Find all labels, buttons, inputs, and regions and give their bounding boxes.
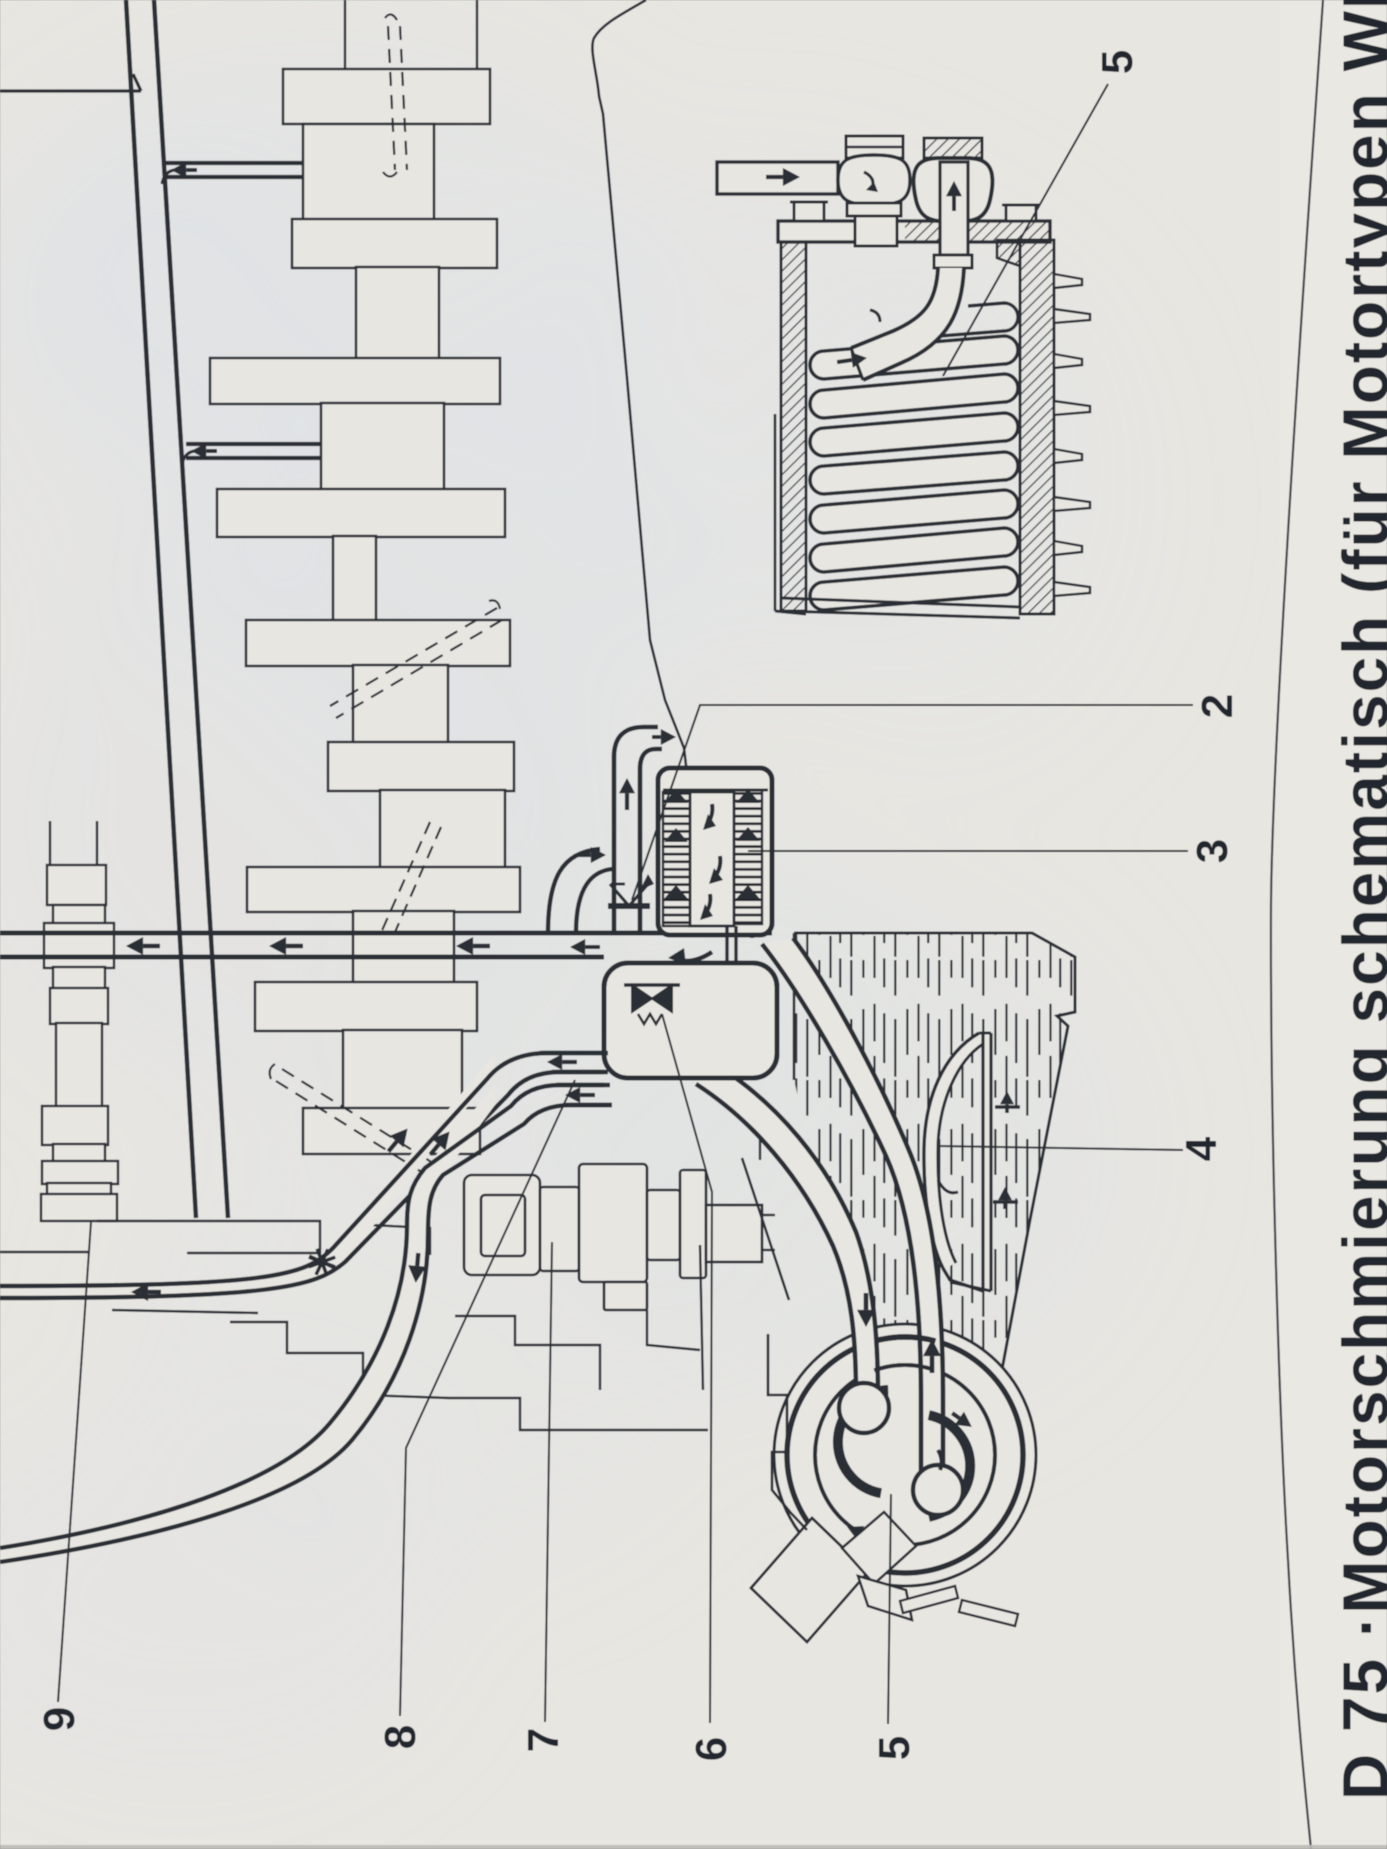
svg-text:5: 5 — [870, 1736, 919, 1760]
svg-text:3: 3 — [1188, 839, 1237, 863]
svg-text:9: 9 — [35, 1707, 84, 1731]
svg-text:8: 8 — [376, 1725, 425, 1749]
svg-text:5: 5 — [1093, 50, 1142, 74]
svg-text:4: 4 — [1177, 1136, 1226, 1161]
svg-text:2: 2 — [1193, 694, 1242, 718]
svg-text:6: 6 — [687, 1737, 736, 1761]
svg-text:D 75 ·Motorschmierung schemati: D 75 ·Motorschmierung schematisch (für M… — [1330, 0, 1387, 1800]
svg-text:7: 7 — [519, 1728, 568, 1752]
